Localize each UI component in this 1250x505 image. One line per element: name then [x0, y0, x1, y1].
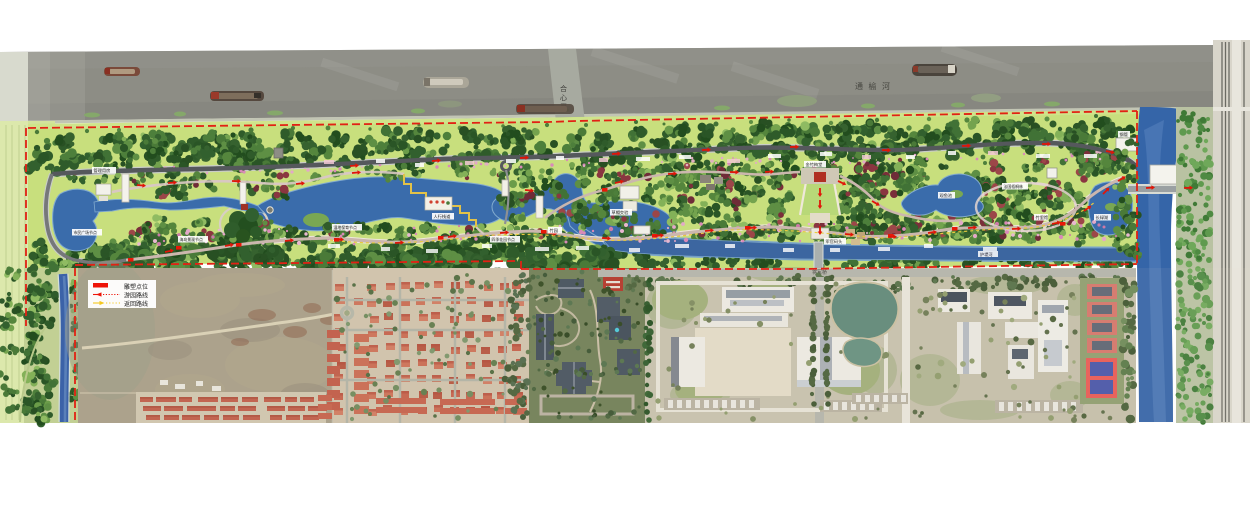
svg-text:通榆河: 通榆河 [855, 81, 896, 91]
